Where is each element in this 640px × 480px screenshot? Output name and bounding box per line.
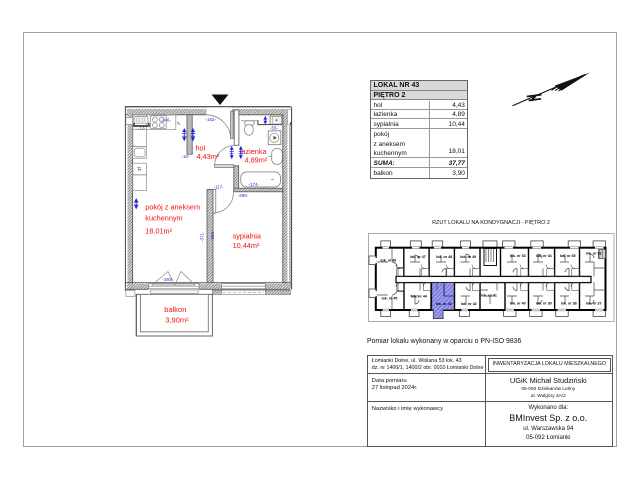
svg-text:lok. nr 49: lok. nr 49: [460, 255, 476, 259]
svg-text:lok. nr 47: lok. nr 47: [410, 255, 426, 259]
svg-text:lok. nr 44: lok. nr 44: [411, 295, 427, 299]
svg-text:lok. nr 40: lok. nr 40: [510, 302, 526, 306]
svg-text:lok. nr 33: lok. nr 33: [510, 254, 526, 258]
svg-text:lok. nr 46: lok. nr 46: [381, 258, 397, 262]
svg-text:lok. nr 48: lok. nr 48: [436, 255, 452, 259]
svg-text:lok. nr 35: lok. nr 35: [560, 254, 576, 258]
svg-text:lok. nr 34: lok. nr 34: [536, 254, 552, 258]
svg-text:lok. nr 43: lok. nr 43: [436, 302, 452, 306]
svg-text:lok. nr 38: lok. nr 38: [561, 302, 577, 306]
svg-text:lok. nr 45: lok. nr 45: [382, 297, 398, 301]
svg-text:lok. nr 41: lok. nr 41: [481, 294, 497, 298]
svg-text:lok. nr 37: lok. nr 37: [586, 302, 602, 306]
svg-text:lok. nr 42: lok. nr 42: [461, 302, 477, 306]
svg-text:lok. nr 36: lok. nr 36: [586, 252, 602, 256]
svg-text:lok. nr 39: lok. nr 39: [536, 302, 552, 306]
